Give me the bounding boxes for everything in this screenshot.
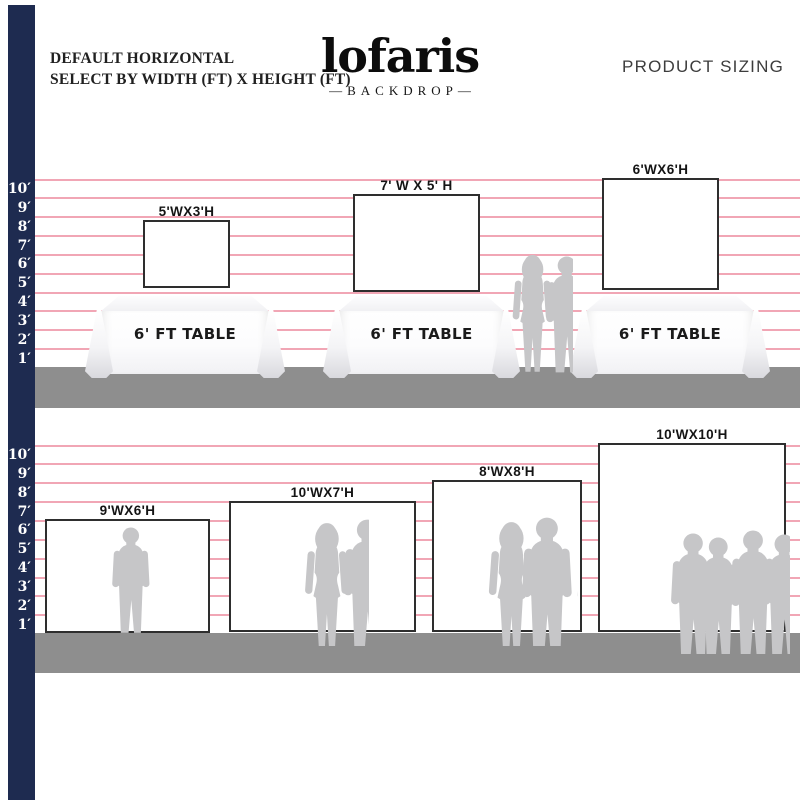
- backdrop-size-label: 7' W X 5' H: [380, 178, 452, 193]
- single-man-silhouette: [102, 521, 156, 638]
- table-top-surface: [338, 296, 505, 312]
- tablecloth: 6' FT TABLE: [338, 311, 505, 374]
- banquet-table-2: 6' FT TABLE: [338, 296, 505, 378]
- backdrop-size-label: 8'WX8'H: [479, 464, 535, 479]
- backdrop-7x5: 7' W X 5' H: [353, 194, 480, 292]
- table-label: 6' FT TABLE: [585, 325, 755, 343]
- backdrop-size-label: 10'WX10'H: [656, 427, 728, 442]
- brand-subtitle: —BACKDROP—: [280, 83, 520, 99]
- backdrop-size-label: 10'WX7'H: [291, 485, 355, 500]
- three-people-silhouette: [438, 512, 578, 646]
- backdrop-size-label: 5'WX3'H: [159, 204, 215, 219]
- tablecloth: 6' FT TABLE: [100, 311, 270, 374]
- table-top-surface: [585, 296, 755, 312]
- table-top-surface: [100, 296, 270, 312]
- ruler-bar: [8, 5, 35, 800]
- table-label: 6' FT TABLE: [338, 325, 505, 343]
- backdrop-6x6: 6'WX6'H: [602, 178, 719, 290]
- backdrop-size-label: 6'WX6'H: [633, 162, 689, 177]
- tablecloth: 6' FT TABLE: [585, 311, 755, 374]
- table-label: 6' FT TABLE: [100, 325, 270, 343]
- page-title: PRODUCT SIZING: [622, 57, 784, 77]
- backdrop-size-label: 9'WX6'H: [100, 503, 156, 518]
- couple-silhouette: [277, 516, 369, 646]
- brand-logo: lofaris —BACKDROP—: [280, 32, 520, 99]
- couple-silhouette: [487, 252, 573, 374]
- banquet-table-3: 6' FT TABLE: [585, 296, 755, 378]
- brand-name: lofaris: [280, 32, 520, 80]
- backdrop-5x3: 5'WX3'H: [143, 220, 230, 288]
- product-sizing-chart: DEFAULT HORIZONTAL SELECT BY WIDTH (FT) …: [0, 0, 800, 800]
- banquet-table-1: 6' FT TABLE: [100, 296, 270, 378]
- group-silhouette: [600, 524, 790, 654]
